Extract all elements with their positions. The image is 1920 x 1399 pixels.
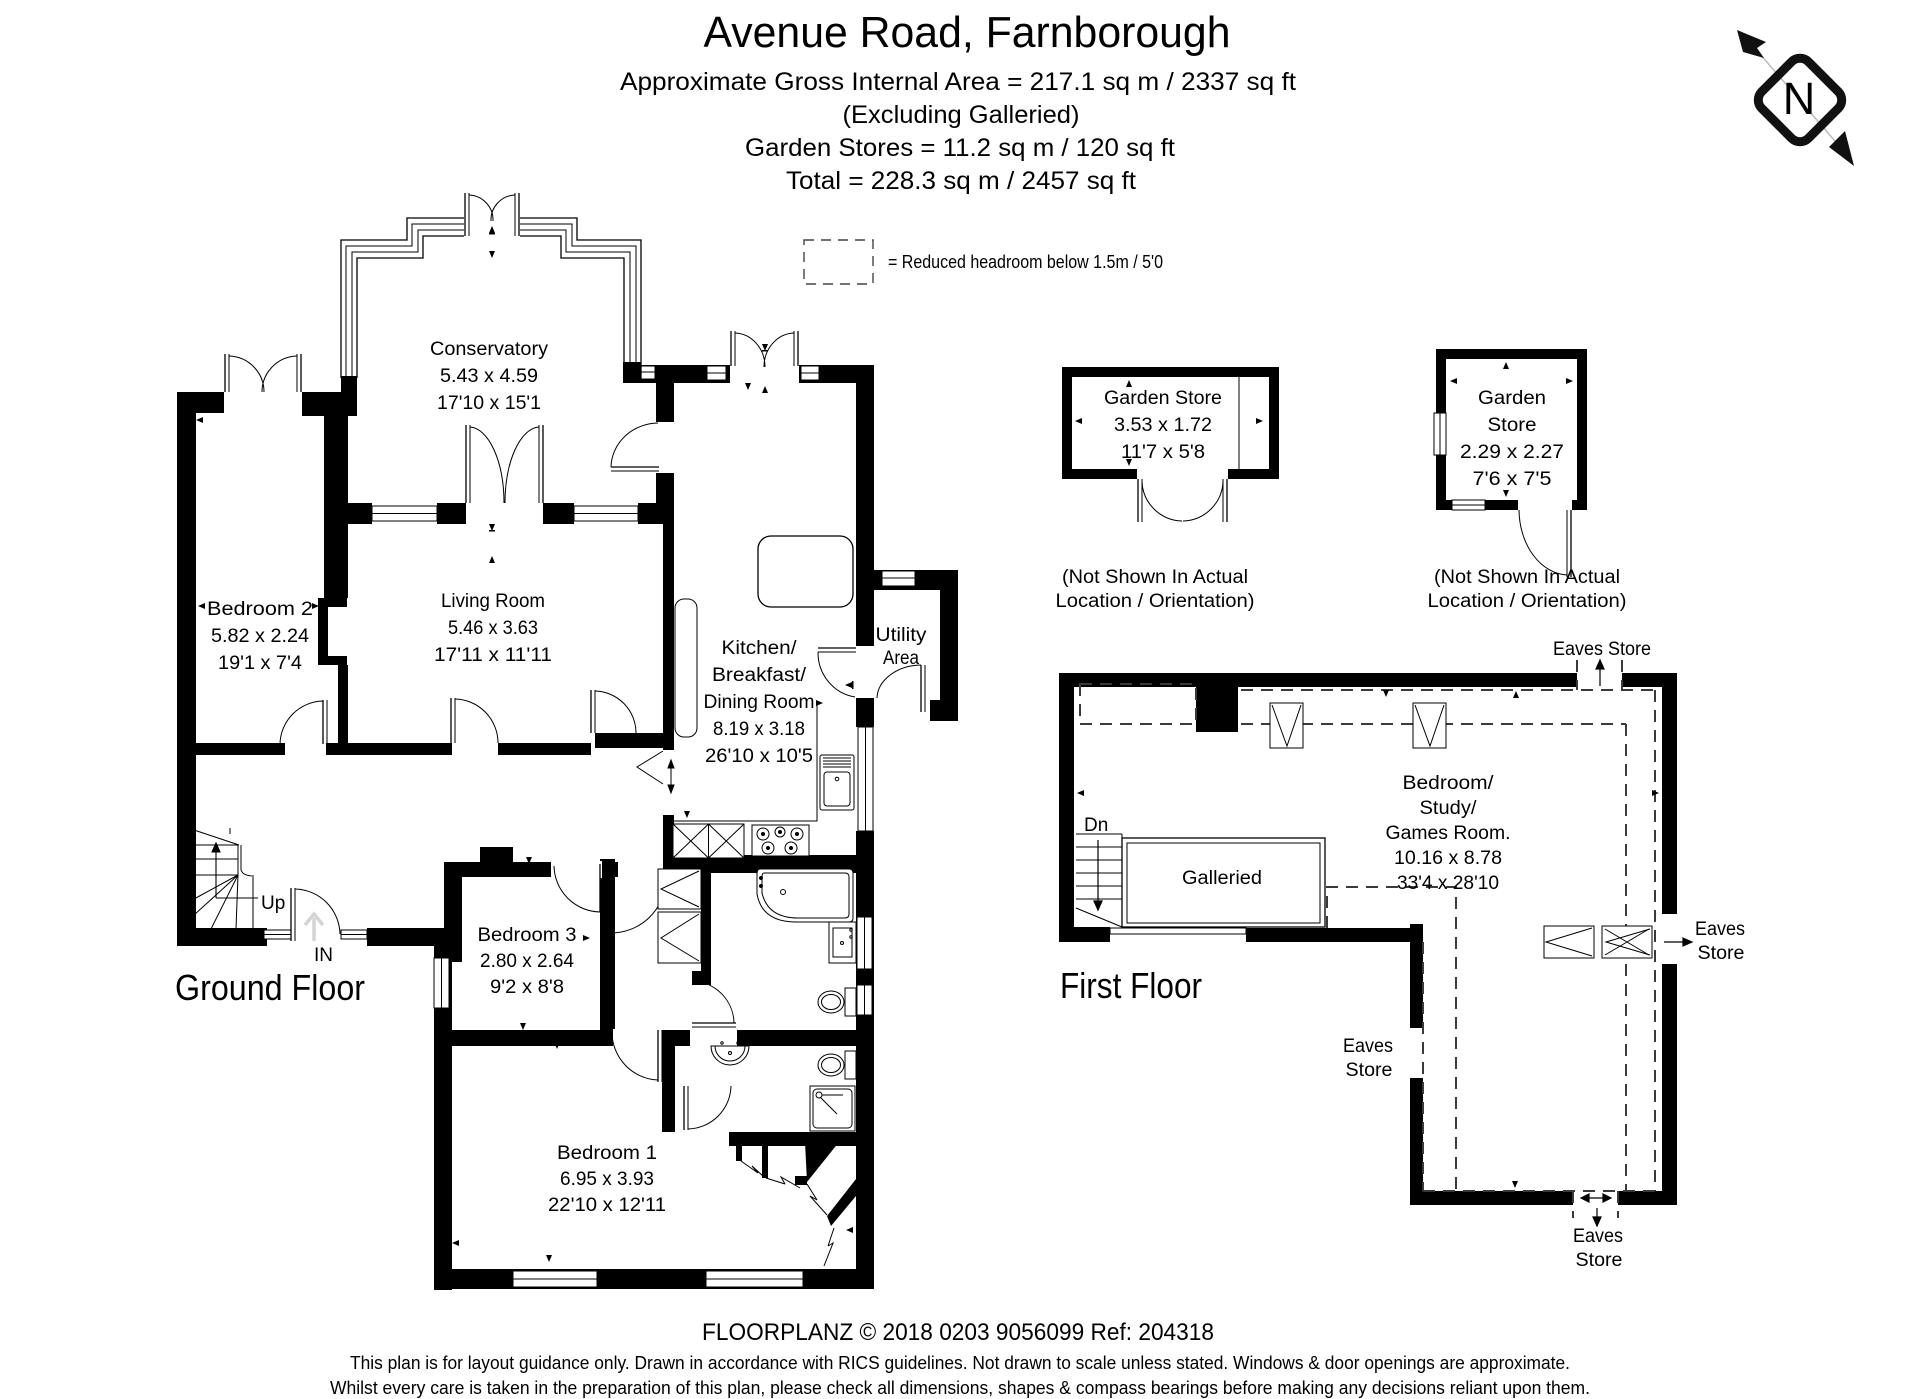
svg-text:Garden Store: Garden Store (1104, 388, 1222, 409)
svg-text:17'10 x 15'1: 17'10 x 15'1 (437, 393, 541, 414)
svg-text:Bedroom 1: Bedroom 1 (557, 1143, 657, 1164)
svg-text:Galleried: Galleried (1182, 868, 1262, 889)
svg-text:Eaves: Eaves (1695, 919, 1745, 940)
svg-text:Garden Stores = 11.2 sq m / 12: Garden Stores = 11.2 sq m / 120 sq ft (745, 134, 1175, 162)
svg-text:Store: Store (1488, 415, 1537, 436)
svg-text:Avenue Road, Farnborough: Avenue Road, Farnborough (704, 8, 1231, 57)
svg-text:17'11 x 11'11: 17'11 x 11'11 (434, 645, 552, 666)
svg-text:(Not Shown In Actual: (Not Shown In Actual (1434, 567, 1620, 588)
svg-text:5.43 x 4.59: 5.43 x 4.59 (440, 366, 538, 387)
svg-text:5.46 x 3.63: 5.46 x 3.63 (448, 618, 538, 639)
svg-text:Location / Orientation): Location / Orientation) (1428, 591, 1627, 612)
svg-text:FLOORPLANZ © 2018 0203 90560: FLOORPLANZ © 2018 0203 9056099 Ref: 2043… (702, 1319, 1214, 1346)
svg-text:5.82 x 2.24: 5.82 x 2.24 (211, 626, 309, 647)
svg-text:Kitchen/: Kitchen/ (722, 638, 798, 659)
svg-text:6.95 x 3.93: 6.95 x 3.93 (560, 1169, 654, 1190)
svg-text:Total = 228.3 sq m / 2457 sq f: Total = 228.3 sq m / 2457 sq ft (786, 167, 1136, 195)
svg-text:Eaves: Eaves (1343, 1036, 1393, 1057)
svg-text:Up: Up (261, 893, 285, 914)
svg-text:Store: Store (1346, 1060, 1393, 1081)
svg-text:Bedroom 3: Bedroom 3 (478, 925, 577, 946)
svg-text:Conservatory: Conservatory (430, 339, 549, 360)
svg-text:Eaves: Eaves (1573, 1226, 1623, 1247)
svg-text:Whilst every care is taken in: Whilst every care is taken in the prepar… (330, 1378, 1590, 1398)
svg-text:Location / Orientation): Location / Orientation) (1056, 591, 1255, 612)
svg-text:Garden: Garden (1478, 388, 1546, 409)
svg-text:10.16 x 8.78: 10.16 x 8.78 (1394, 848, 1502, 869)
svg-text:3.53 x 1.72: 3.53 x 1.72 (1114, 415, 1212, 436)
svg-text:(Not Shown In Actual: (Not Shown In Actual (1062, 567, 1248, 588)
svg-text:Utility: Utility (876, 625, 928, 646)
svg-text:Dn: Dn (1084, 815, 1108, 836)
svg-text:Store: Store (1576, 1250, 1623, 1271)
svg-text:2.80 x 2.64: 2.80 x 2.64 (480, 951, 574, 972)
svg-text:Living Room: Living Room (441, 591, 545, 612)
svg-text:IN: IN (314, 945, 333, 966)
svg-text:N: N (1783, 73, 1816, 124)
svg-text:8.19 x 3.18: 8.19 x 3.18 (713, 719, 805, 740)
svg-text:19'1 x 7'4: 19'1 x 7'4 (218, 653, 302, 674)
svg-text:Dining Room: Dining Room (704, 692, 815, 713)
svg-text:11'7 x 5'8: 11'7 x 5'8 (1121, 442, 1205, 463)
svg-text:Area: Area (883, 648, 919, 669)
svg-text:Approximate Gross Internal Are: Approximate Gross Internal Area = 217.1 … (620, 68, 1296, 96)
svg-text:= Reduced headroom below 1.5m: = Reduced headroom below 1.5m / 5'0 (888, 252, 1163, 272)
svg-text:Store: Store (1698, 943, 1745, 964)
svg-text:Bedroom 2: Bedroom 2 (207, 599, 313, 620)
svg-text:Eaves Store: Eaves Store (1553, 639, 1651, 660)
svg-text:Games Room.: Games Room. (1386, 823, 1511, 844)
svg-text:(Excluding Galleried): (Excluding Galleried) (843, 101, 1080, 129)
svg-text:7'6 x 7'5: 7'6 x 7'5 (1473, 469, 1552, 490)
svg-text:First Floor: First Floor (1060, 965, 1202, 1006)
svg-text:Breakfast/: Breakfast/ (712, 665, 807, 686)
svg-text:Study/: Study/ (1420, 798, 1478, 819)
svg-text:33'4 x 28'10: 33'4 x 28'10 (1397, 873, 1499, 894)
svg-text:Bedroom/: Bedroom/ (1403, 773, 1495, 794)
svg-text:2.29 x 2.27: 2.29 x 2.27 (1460, 442, 1564, 463)
svg-text:26'10 x 10'5: 26'10 x 10'5 (705, 746, 813, 767)
svg-text:Ground Floor: Ground Floor (175, 967, 365, 1008)
svg-text:This plan is for layout guidan: This plan is for layout guidance only. D… (350, 1353, 1570, 1373)
svg-text:22'10 x 12'11: 22'10 x 12'11 (548, 1195, 666, 1216)
svg-text:9'2 x 8'8: 9'2 x 8'8 (490, 977, 564, 998)
